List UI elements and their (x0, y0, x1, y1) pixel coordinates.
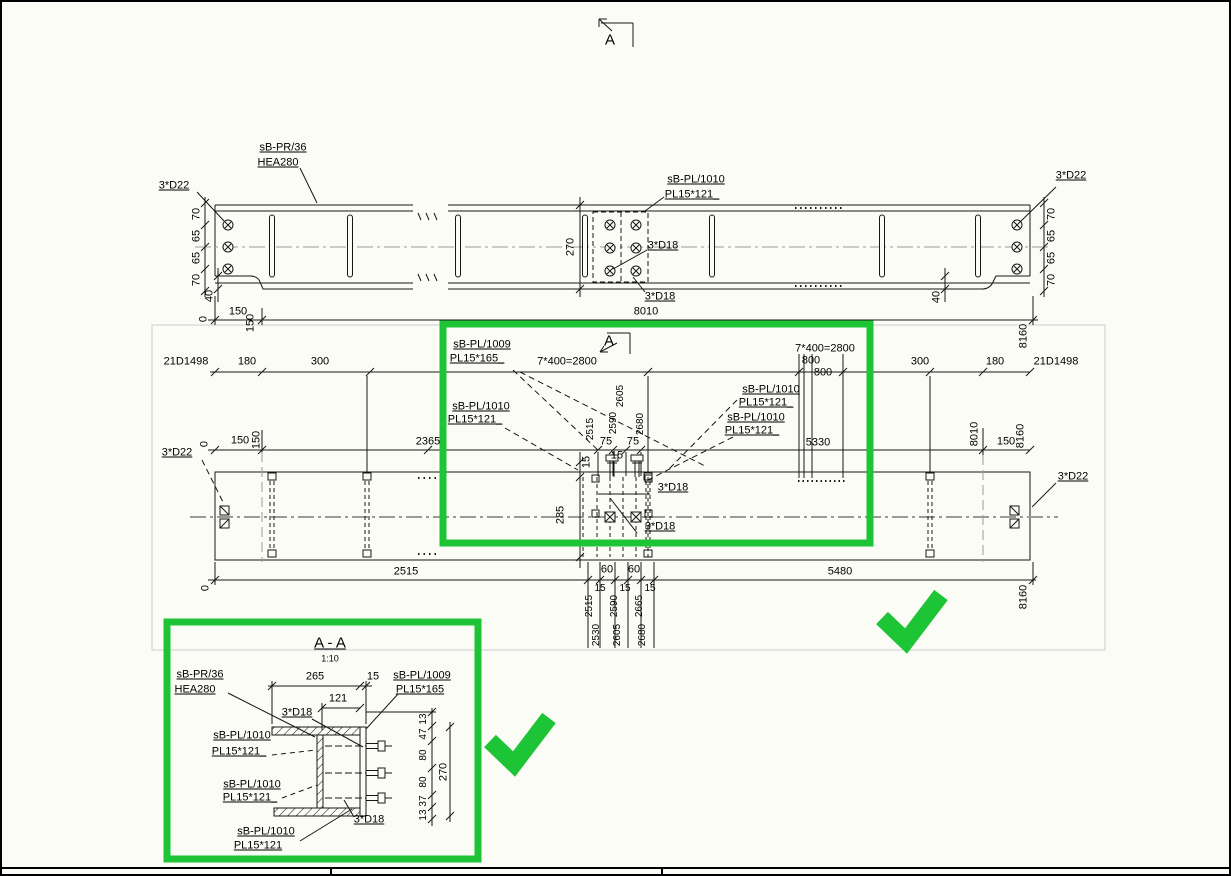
dim: 70 (1047, 274, 1058, 286)
bolt-label: 3*D18 (648, 241, 679, 252)
section-scale: 1:10 (321, 655, 339, 664)
dim: 2680 (638, 624, 648, 646)
dim: 300 (311, 357, 329, 368)
section-marker-letter: A (604, 334, 614, 349)
dim: 270 (566, 238, 577, 256)
page-border (1, 1, 1230, 875)
plate-tag: PL15*121_ (665, 190, 719, 201)
section-title: A - A (314, 636, 346, 651)
dim: 13 (419, 809, 429, 820)
plate-tag: PL15*121_ (212, 747, 266, 758)
highlight-annotations (167, 324, 941, 859)
dim: 265 (306, 672, 324, 683)
plate-tag: PL15*165_ (450, 354, 504, 365)
bolt-label: 3*D18 (645, 292, 676, 303)
dim: 65 (1047, 230, 1058, 242)
dim: 0 (201, 585, 212, 591)
dim: 0 (200, 441, 211, 447)
dim: 80 (419, 776, 429, 787)
dim: 15 (594, 584, 605, 594)
dim: 150 (246, 314, 257, 332)
dim: 13 (419, 713, 429, 724)
position-number: 21D1498 (1034, 357, 1079, 368)
title-block-edge (2, 868, 1229, 875)
dim: 65 (192, 252, 203, 264)
dim: 2515 (586, 418, 596, 440)
member-tag: sB-PR/36 (259, 143, 306, 154)
dim: 150 (997, 437, 1015, 448)
dim: 7*400=2800 (795, 344, 855, 355)
dim: 270 (439, 763, 450, 781)
dim: 70 (1047, 208, 1058, 220)
dim: 40 (205, 290, 216, 302)
dim: 80 (419, 749, 429, 760)
green-checkmark-icon (490, 718, 549, 764)
dim: 800 (802, 356, 820, 367)
plate-tag: PL15*121_ (725, 426, 779, 437)
dim: 60 (601, 565, 613, 576)
dim: 2530 (592, 624, 602, 646)
bolt-label: 3*D18 (658, 483, 689, 494)
bolt-label: 3*D22 (1056, 171, 1087, 182)
plate-tag: sB-PL/1010 (223, 780, 280, 791)
bolt-label: 3*D22 (162, 448, 193, 459)
dim: 70 (192, 274, 203, 286)
plate-tag: sB-PL/1009 (453, 340, 510, 351)
green-checkmark-icon (882, 595, 941, 641)
dim: 60 (628, 565, 640, 576)
dim: 2680 (636, 413, 646, 435)
dim: 75 (600, 437, 612, 448)
dim: 300 (911, 357, 929, 368)
dim: 70 (192, 208, 203, 220)
drawing-canvas (0, 0, 1231, 876)
dim: 47 (419, 728, 429, 739)
dim: 8160 (1016, 424, 1027, 448)
dim: 15 (367, 672, 379, 683)
dim: 75 (627, 437, 639, 448)
bolt-label: 3*D18 (282, 708, 313, 719)
dim: 40 (932, 291, 943, 303)
plate-tag: PL15*121_ (739, 398, 793, 409)
dim: 5480 (828, 567, 852, 578)
bolt-label: 3*D18 (354, 815, 385, 826)
plate-tag: PL15*121 (234, 841, 282, 852)
dim: 2515 (585, 595, 595, 617)
dim: 285 (556, 506, 567, 524)
dim: 15 (582, 456, 593, 468)
dim: 2665 (635, 595, 645, 617)
elevation-view (195, 168, 1056, 325)
dim: 2365 (416, 437, 440, 448)
dim: 8160 (1019, 585, 1030, 609)
plate-tag: PL15*121_ (223, 793, 277, 804)
dim: 65 (1047, 252, 1058, 264)
dim: 2605 (616, 385, 626, 407)
plate-tag: sB-PL/1010 (742, 385, 799, 396)
dim: 0 (199, 316, 210, 322)
dim: 15 (611, 451, 623, 462)
position-number: 21D1498 (164, 357, 209, 368)
plate-tag: sB-PL/1010 (727, 413, 784, 424)
dim: 15 (644, 584, 655, 594)
dim: 5330 (806, 438, 830, 449)
plate-tag: sB-PL/1010 (452, 402, 509, 413)
bolt-label: 3*D22 (1058, 472, 1089, 483)
member-tag: HEA280 (258, 158, 299, 169)
dim: 15 (619, 584, 630, 594)
section-marker-letter: A (605, 33, 615, 48)
dim: 65 (192, 230, 203, 242)
plate-tag: sB-PL/1010 (237, 827, 294, 838)
plate-tag: sB-PL/1010 (667, 175, 724, 186)
drawing-sheet: A sB-PR/36 HEA280 3*D22 sB-PL/1010 PL15*… (0, 0, 1231, 876)
dim: 2590 (609, 412, 619, 434)
member-tag: HEA280 (175, 685, 216, 696)
plate-tag: sB-PL/1009 (393, 671, 450, 682)
dim: 8010 (970, 422, 981, 446)
dim: 800 (814, 368, 832, 379)
dim: 37 (419, 795, 429, 806)
stiffeners-elevation (270, 215, 981, 277)
member-tag: sB-PR/36 (176, 670, 223, 681)
bolt-label: 3*D22 (159, 181, 190, 192)
dim: 150 (252, 431, 263, 449)
plate-tag: PL15*121_ (448, 415, 502, 426)
dim: 2515 (394, 567, 418, 578)
section-bolts (325, 741, 392, 803)
dim: 8010 (634, 307, 658, 318)
dim: 8160 (1019, 324, 1030, 348)
dim: 2605 (613, 624, 623, 646)
dim: 150 (231, 436, 249, 447)
dim: 7*400=2800 (537, 357, 597, 368)
dim: 121 (329, 694, 347, 705)
dim: 180 (986, 357, 1004, 368)
dim: 2590 (610, 595, 620, 617)
dim: 180 (238, 357, 256, 368)
plate-tag: sB-PL/1010 (213, 731, 270, 742)
splice-bolts (605, 220, 641, 276)
plate-tag: PL15*165 (396, 685, 444, 696)
bolt-label: 3*D18 (645, 522, 676, 533)
